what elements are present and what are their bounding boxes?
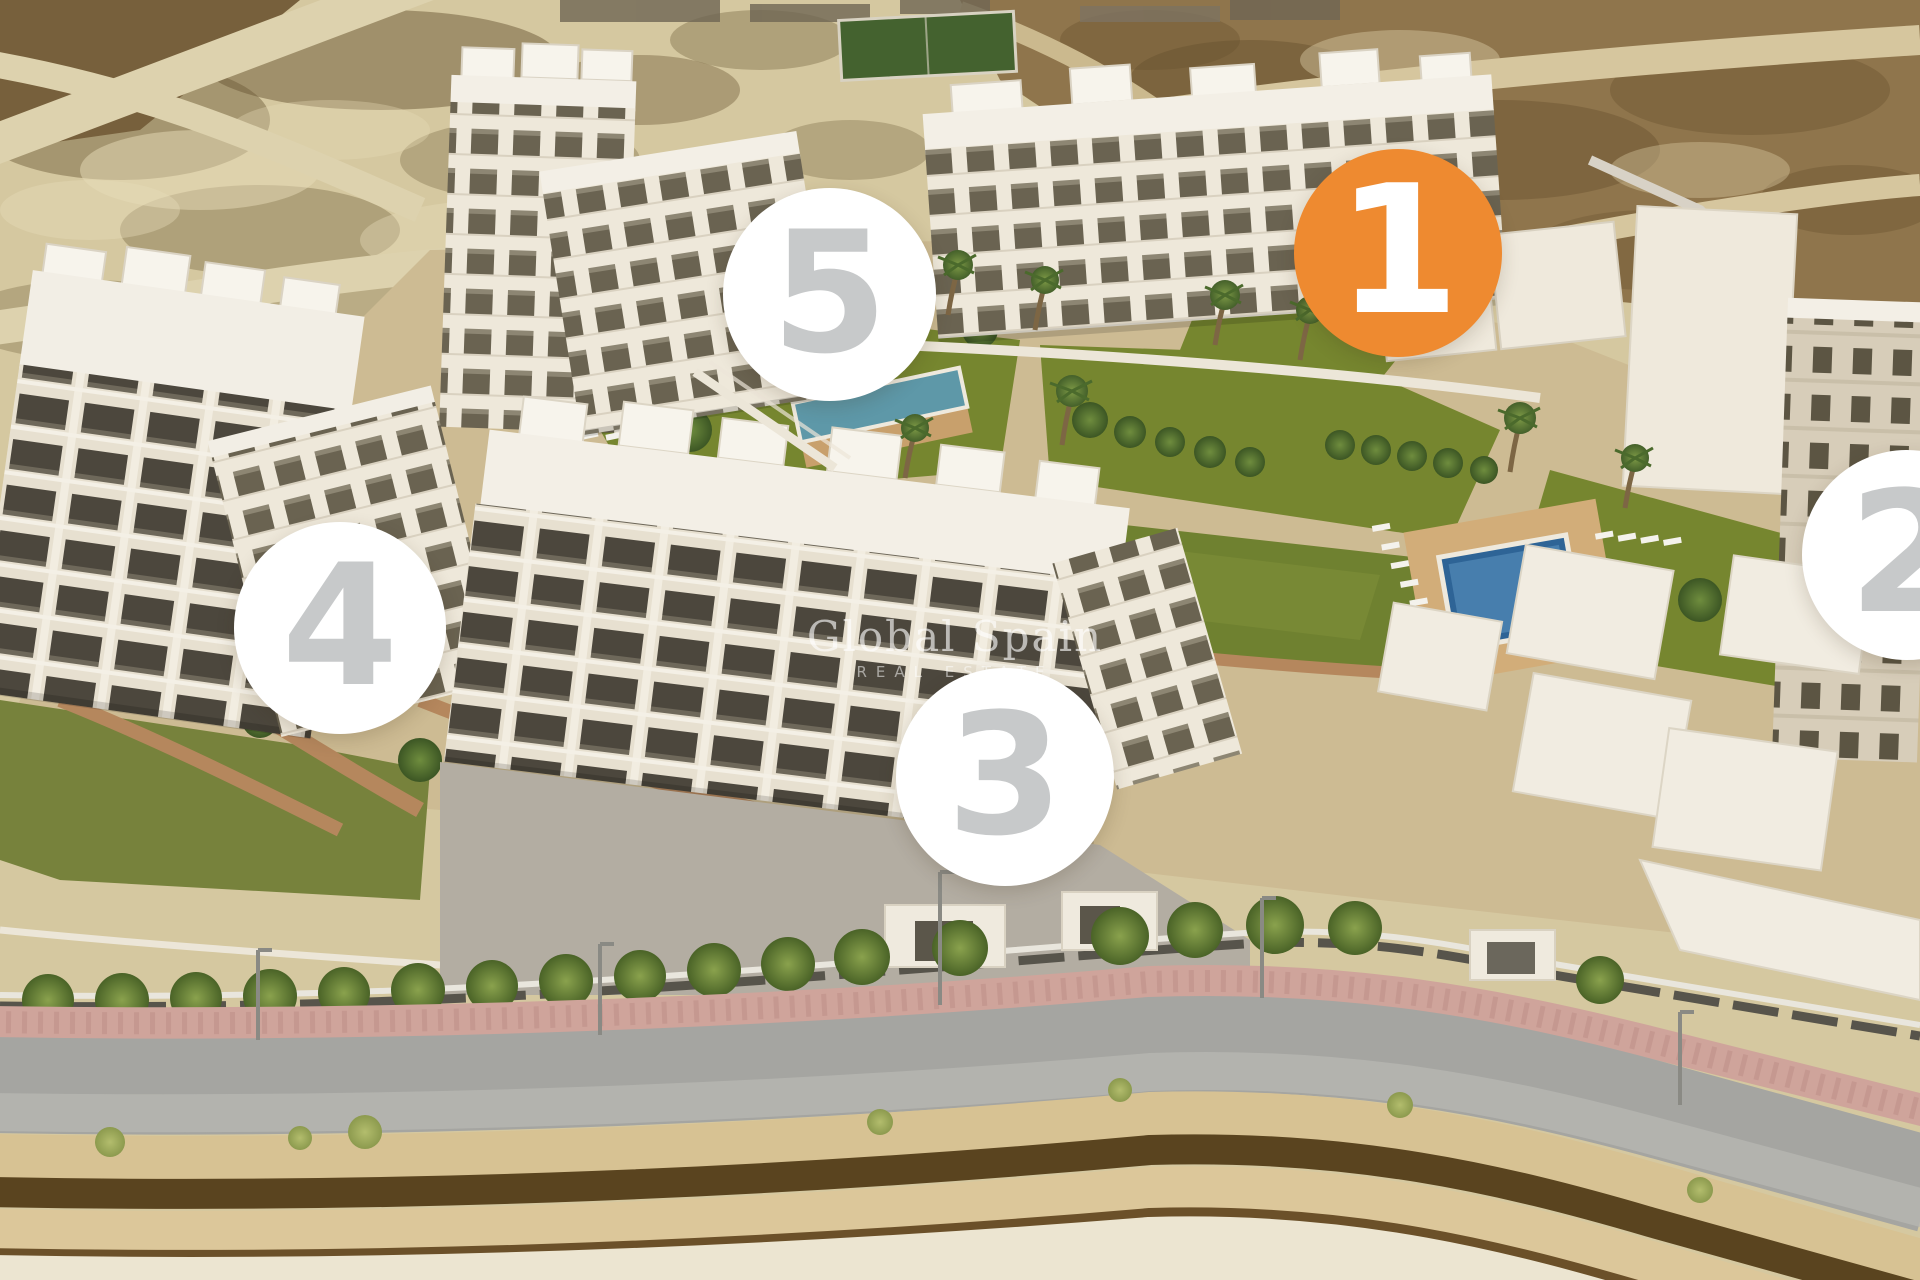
building-marker-1[interactable]: 1: [1294, 149, 1502, 357]
building-marker-5[interactable]: 5: [723, 188, 936, 401]
building-marker-3[interactable]: 3: [896, 668, 1114, 886]
aerial-render: 1 2 3 4 5 Global Spain REAL ESTATE: [0, 0, 1920, 1280]
marker-number: 5: [771, 209, 888, 377]
marker-number: 2: [1849, 469, 1920, 637]
sports-field: [839, 11, 1017, 80]
marker-number: 1: [1336, 162, 1460, 340]
marker-number: 4: [282, 542, 399, 710]
street-zone: [0, 981, 1920, 1280]
building-marker-4[interactable]: 4: [234, 522, 446, 734]
marker-number: 3: [947, 691, 1064, 859]
